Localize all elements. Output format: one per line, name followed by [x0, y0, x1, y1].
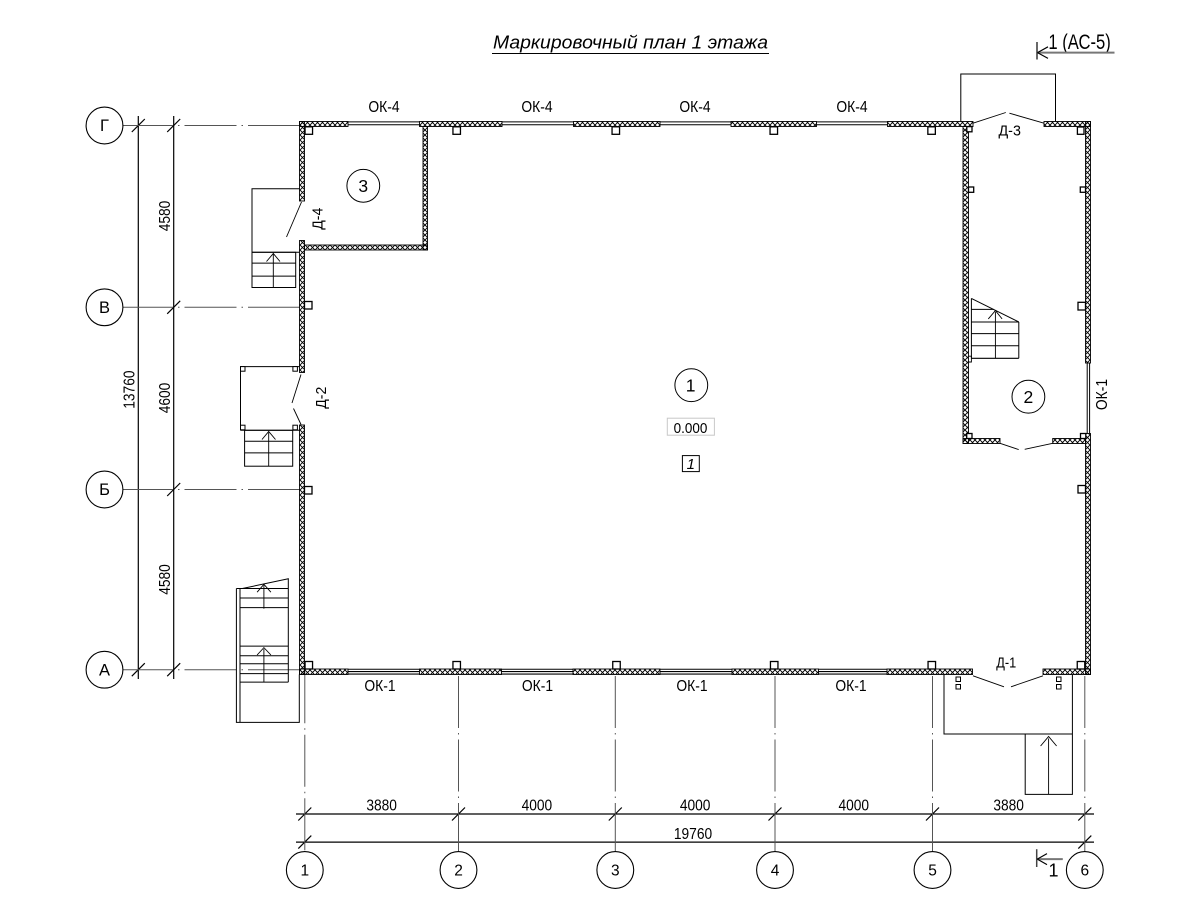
svg-text:1: 1 [300, 863, 309, 880]
svg-text:1: 1 [1048, 860, 1058, 880]
svg-text:Д-3: Д-3 [999, 122, 1021, 139]
svg-text:1 (АС-5): 1 (АС-5) [1048, 31, 1110, 54]
svg-text:В: В [99, 299, 110, 317]
svg-text:Д-2: Д-2 [313, 387, 330, 409]
svg-text:1: 1 [687, 456, 695, 473]
svg-text:2: 2 [1024, 387, 1034, 407]
svg-text:4000: 4000 [838, 798, 869, 815]
svg-text:ОК-4: ОК-4 [368, 99, 400, 116]
svg-text:ОК-4: ОК-4 [679, 99, 711, 116]
svg-text:Д-4: Д-4 [310, 208, 327, 230]
svg-text:4000: 4000 [522, 798, 553, 815]
svg-text:19760: 19760 [674, 826, 712, 843]
svg-text:4580: 4580 [157, 201, 174, 232]
svg-text:4600: 4600 [157, 383, 174, 414]
svg-text:Маркировочный план 1 этажа: Маркировочный план 1 этажа [493, 32, 768, 53]
svg-text:2: 2 [454, 863, 463, 880]
svg-text:Д-1: Д-1 [996, 654, 1016, 671]
svg-text:6: 6 [1080, 863, 1089, 880]
svg-text:ОК-1: ОК-1 [835, 678, 866, 695]
svg-text:1: 1 [686, 375, 696, 395]
svg-text:13760: 13760 [122, 370, 139, 408]
svg-text:ОК-1: ОК-1 [522, 678, 553, 695]
svg-text:3: 3 [358, 176, 368, 196]
svg-text:3: 3 [611, 863, 620, 880]
svg-text:ОК-1: ОК-1 [364, 678, 395, 695]
svg-text:5: 5 [928, 863, 937, 880]
svg-text:Г: Г [100, 117, 109, 135]
svg-text:4: 4 [771, 863, 780, 880]
svg-text:Б: Б [99, 481, 110, 499]
svg-text:ОК-4: ОК-4 [836, 99, 868, 116]
svg-text:А: А [99, 661, 110, 679]
svg-text:0.000: 0.000 [674, 421, 708, 437]
svg-text:4000: 4000 [680, 798, 711, 815]
svg-text:ОК-4: ОК-4 [521, 99, 553, 116]
svg-text:3880: 3880 [366, 798, 397, 815]
svg-text:4580: 4580 [157, 564, 174, 595]
svg-text:3880: 3880 [993, 798, 1024, 815]
svg-text:ОК-1: ОК-1 [1094, 379, 1111, 410]
svg-text:ОК-1: ОК-1 [676, 678, 707, 695]
